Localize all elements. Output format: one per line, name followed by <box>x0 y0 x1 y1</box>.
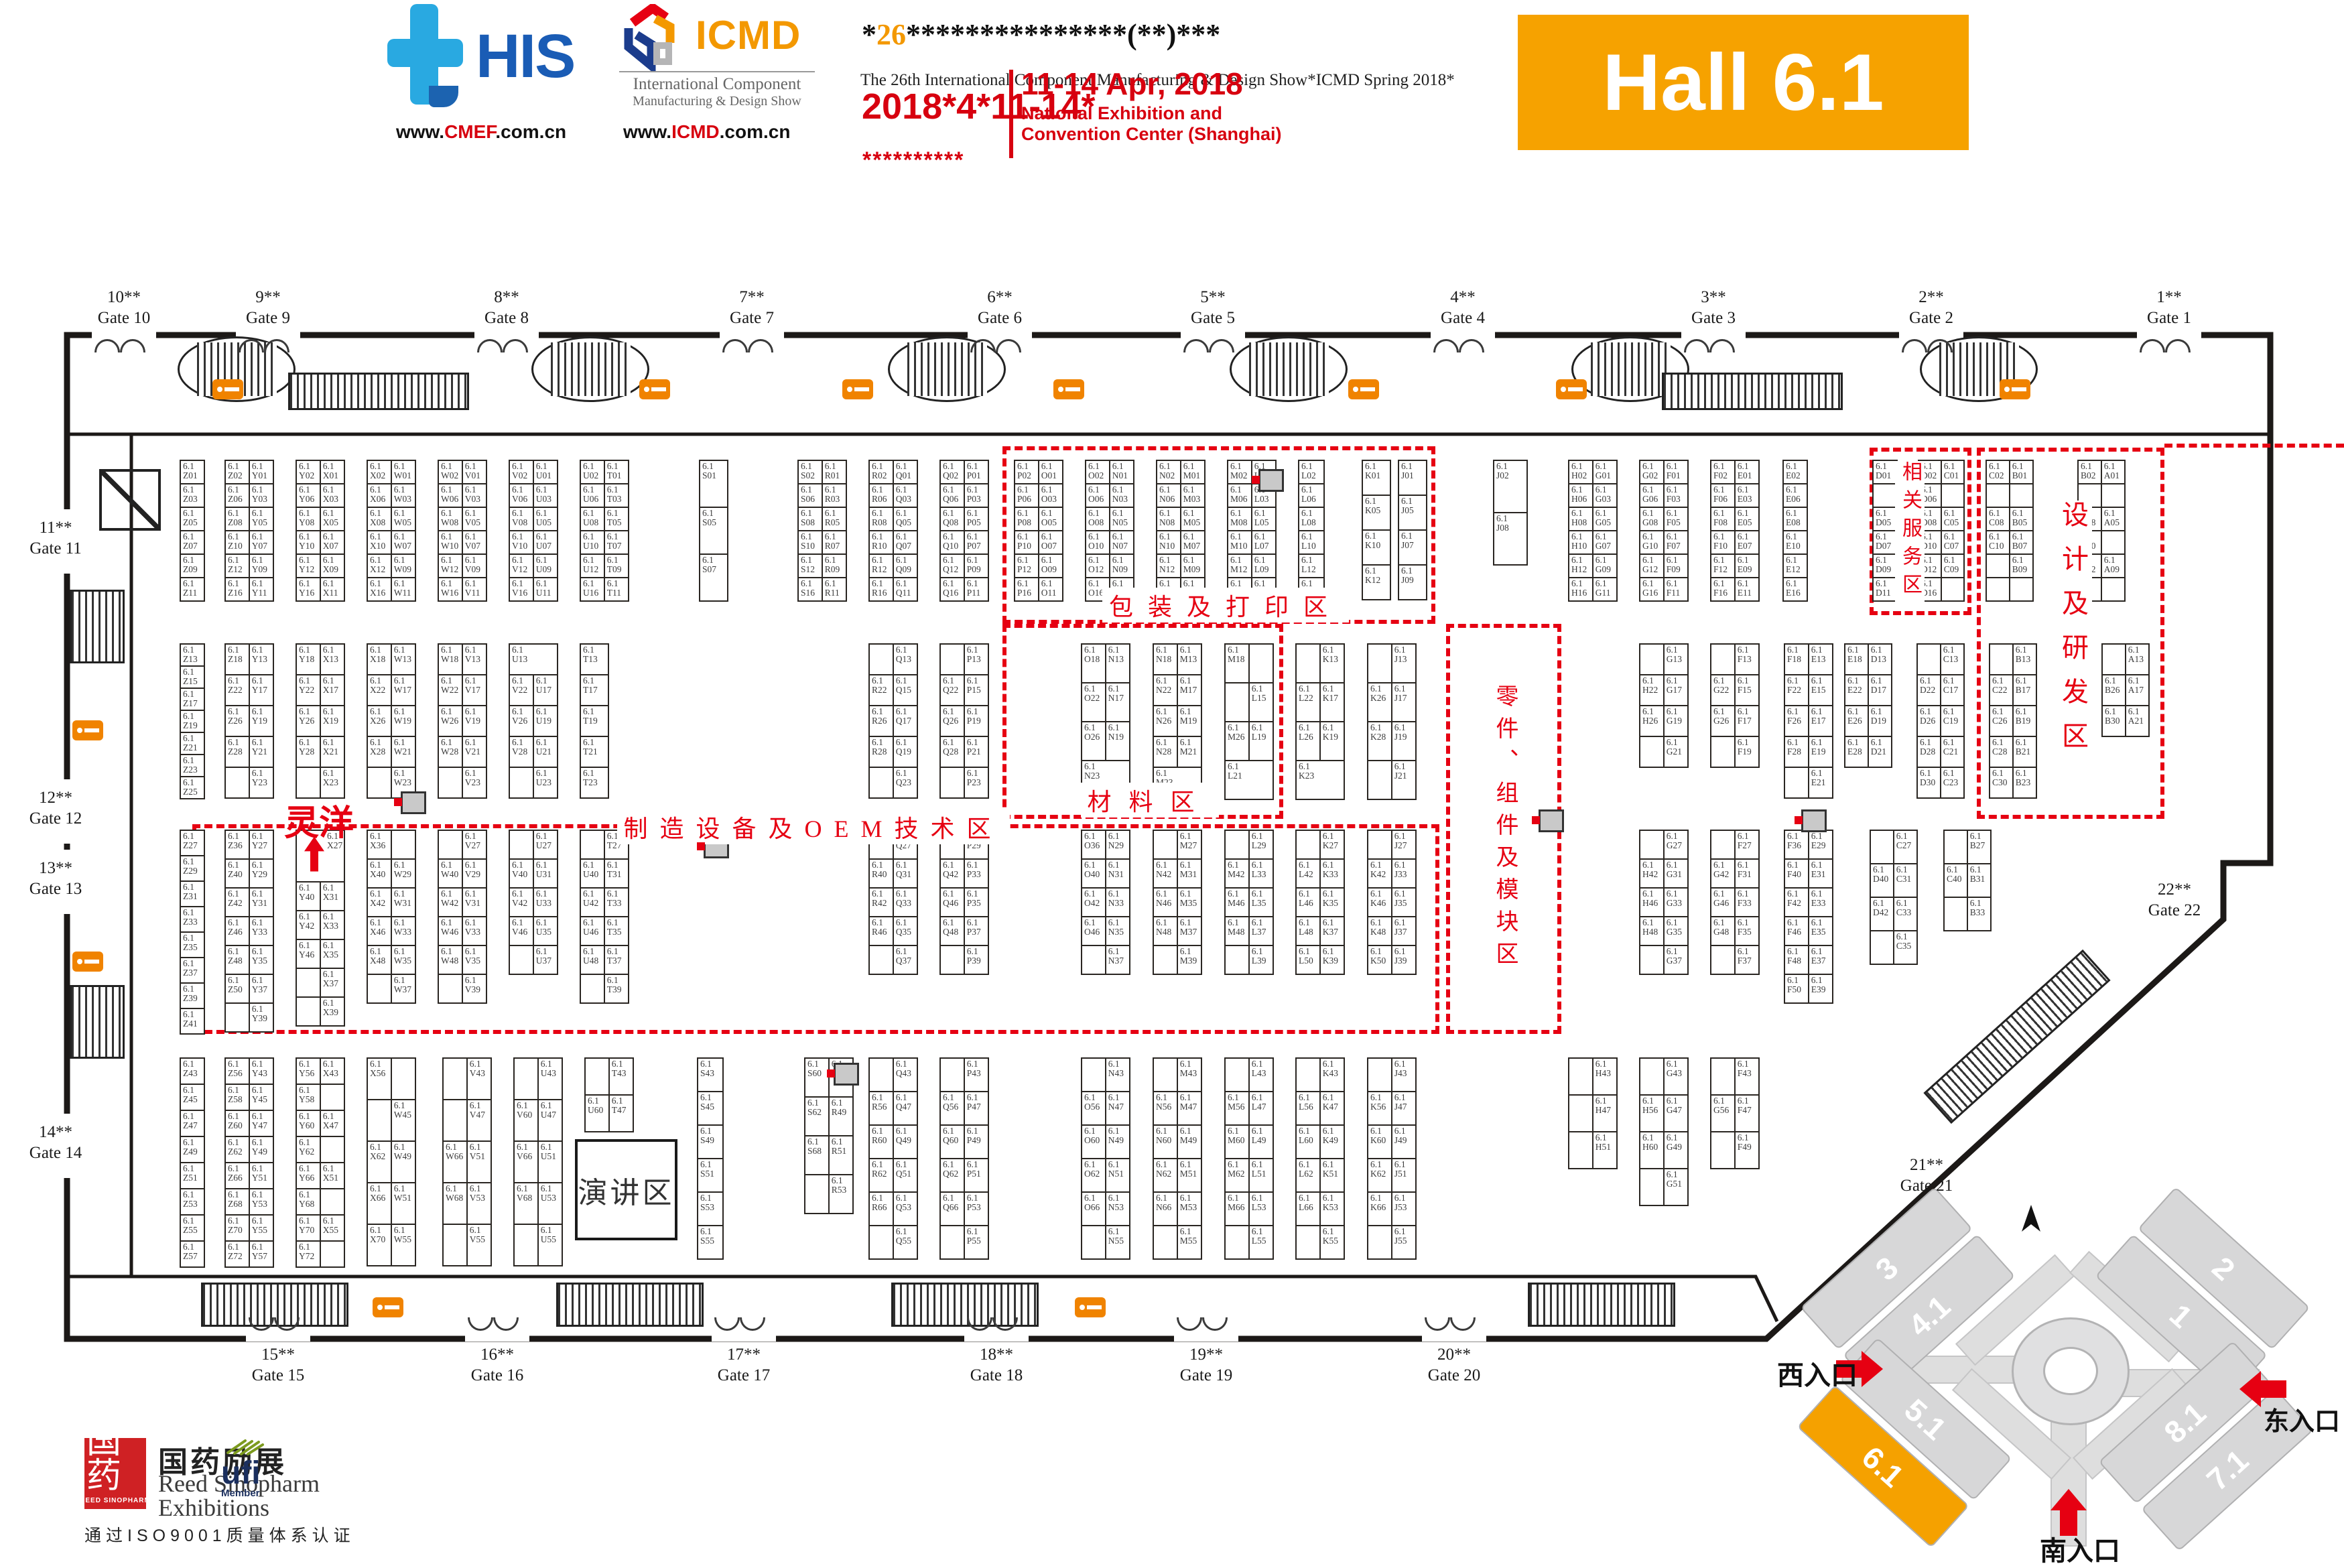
booth-Z35[interactable]: 6.1 Z35 <box>180 931 205 959</box>
booth-Y46[interactable]: 6.1 Y46 <box>296 939 321 970</box>
booth-V01[interactable]: 6.1 V01 <box>462 460 487 485</box>
booth-Z31[interactable]: 6.1 Z31 <box>180 880 205 908</box>
booth-U31[interactable]: 6.1 U31 <box>533 858 558 889</box>
booth-F12[interactable]: 6.1 F12 <box>1710 553 1736 579</box>
booth-Q06[interactable]: 6.1 Q06 <box>939 483 965 509</box>
booth-N35[interactable]: 6.1 N35 <box>1105 916 1130 947</box>
booth-L15[interactable]: 6.1 L15 <box>1248 682 1274 723</box>
booth-J08[interactable]: 6.1 J08 <box>1493 512 1528 566</box>
booth-N12[interactable]: 6.1 N12 <box>1156 553 1181 579</box>
booth-L50[interactable]: 6.1 L50 <box>1295 945 1321 976</box>
booth-X31[interactable]: 6.1 X31 <box>320 881 345 912</box>
booth-N46[interactable]: 6.1 N46 <box>1153 887 1178 918</box>
booth-Y49[interactable]: 6.1 Y49 <box>249 1136 274 1164</box>
booth-T23[interactable]: 6.1 T23 <box>580 767 609 799</box>
booth-R56[interactable]: 6.1 R56 <box>868 1091 894 1126</box>
booth-R06[interactable]: 6.1 R06 <box>868 483 894 509</box>
booth-H51[interactable]: 6.1 H51 <box>1592 1131 1618 1170</box>
booth-R66[interactable]: 6.1 R66 <box>868 1191 894 1227</box>
booth-E01[interactable]: 6.1 E01 <box>1734 460 1760 485</box>
booth-N08[interactable]: 6.1 N08 <box>1156 507 1181 532</box>
booth-T01[interactable]: 6.1 T01 <box>604 460 629 485</box>
booth-U60[interactable]: 6.1 U60 <box>584 1094 610 1133</box>
booth-R62[interactable]: 6.1 R62 <box>868 1158 894 1193</box>
booth-Q02[interactable]: 6.1 Q02 <box>939 460 965 485</box>
booth-Z02[interactable]: 6.1 Z02 <box>224 460 250 485</box>
booth-M51[interactable]: 6.1 M51 <box>1177 1158 1202 1193</box>
booth-X62[interactable]: 6.1 X62 <box>367 1140 392 1184</box>
booth-R02[interactable]: 6.1 R02 <box>868 460 894 485</box>
booth-L39[interactable]: 6.1 L39 <box>1248 945 1274 976</box>
booth-X51[interactable]: 6.1 X51 <box>320 1162 345 1190</box>
booth-P06[interactable]: 6.1 P06 <box>1014 483 1039 509</box>
booth-P51[interactable]: 6.1 P51 <box>964 1158 989 1193</box>
booth-U02[interactable]: 6.1 U02 <box>580 460 605 485</box>
booth-J07[interactable]: 6.1 J07 <box>1398 529 1427 566</box>
booth-R07[interactable]: 6.1 R07 <box>822 530 847 556</box>
booth-P19[interactable]: 6.1 P19 <box>964 705 989 738</box>
booth-X22[interactable]: 6.1 X22 <box>367 674 392 707</box>
booth-U47[interactable]: 6.1 U47 <box>537 1099 563 1142</box>
booth-U17[interactable]: 6.1 U17 <box>533 674 558 707</box>
booth-X28[interactable]: 6.1 X28 <box>367 736 392 769</box>
booth-Q66[interactable]: 6.1 Q66 <box>939 1191 965 1227</box>
booth-K49[interactable]: 6.1 K49 <box>1319 1124 1345 1160</box>
booth-M46[interactable]: 6.1 M46 <box>1224 887 1250 918</box>
booth-Q42[interactable]: 6.1 Q42 <box>939 858 965 889</box>
booth-Y05[interactable]: 6.1 Y05 <box>249 507 274 532</box>
booth-C17[interactable]: 6.1 C17 <box>1940 674 1965 707</box>
booth-W45[interactable]: 6.1 W45 <box>391 1099 416 1142</box>
booth-H42[interactable]: 6.1 H42 <box>1639 858 1665 889</box>
booth-T37[interactable]: 6.1 T37 <box>604 945 629 976</box>
booth-M03[interactable]: 6.1 M03 <box>1180 483 1206 509</box>
booth-E08[interactable]: 6.1 E08 <box>1782 507 1808 532</box>
booth-U23[interactable]: 6.1 U23 <box>533 767 558 799</box>
booth-F33[interactable]: 6.1 F33 <box>1734 887 1760 918</box>
booth-F13[interactable]: 6.1 F13 <box>1734 643 1760 676</box>
booth-L56[interactable]: 6.1 L56 <box>1295 1091 1321 1126</box>
booth-Q35[interactable]: 6.1 Q35 <box>893 916 918 947</box>
booth-B33[interactable]: 6.1 B33 <box>1967 897 1992 932</box>
booth-Z26[interactable]: 6.1 Z26 <box>224 705 250 738</box>
booth-K28[interactable]: 6.1 K28 <box>1367 721 1392 762</box>
booth-M01[interactable]: 6.1 M01 <box>1180 460 1206 485</box>
booth-W18[interactable]: 6.1 W18 <box>438 643 463 676</box>
booth-Y56[interactable]: 6.1 Y56 <box>296 1057 321 1086</box>
booth-Q47[interactable]: 6.1 Q47 <box>893 1091 918 1126</box>
booth-L12[interactable]: 6.1 L12 <box>1298 553 1325 579</box>
booth-N43[interactable]: 6.1 N43 <box>1105 1057 1130 1093</box>
booth-Z01[interactable]: 6.1 Z01 <box>180 460 205 485</box>
booth-N60[interactable]: 6.1 N60 <box>1153 1124 1178 1160</box>
booth-R08[interactable]: 6.1 R08 <box>868 507 894 532</box>
booth-U06[interactable]: 6.1 U06 <box>580 483 605 509</box>
booth-N17[interactable]: 6.1 N17 <box>1105 682 1130 723</box>
booth-S16[interactable]: 6.1 S16 <box>797 577 823 602</box>
booth-Q08[interactable]: 6.1 Q08 <box>939 507 965 532</box>
booth-V55[interactable]: 6.1 V55 <box>466 1224 492 1267</box>
booth-E35[interactable]: 6.1 E35 <box>1808 916 1833 947</box>
booth-Y29[interactable]: 6.1 Y29 <box>249 858 274 889</box>
booth-Y60[interactable]: 6.1 Y60 <box>296 1110 321 1138</box>
booth-K53[interactable]: 6.1 K53 <box>1319 1191 1345 1227</box>
booth-C28[interactable]: 6.1 C28 <box>1989 736 2014 769</box>
booth-V13[interactable]: 6.1 V13 <box>462 643 487 676</box>
booth-L53[interactable]: 6.1 L53 <box>1248 1191 1274 1227</box>
booth-B02[interactable]: 6.1 B02 <box>2077 460 2102 485</box>
booth-C08[interactable]: 6.1 C08 <box>1985 507 2010 532</box>
booth-K46[interactable]: 6.1 K46 <box>1367 887 1392 918</box>
booth-G35[interactable]: 6.1 G35 <box>1663 916 1689 947</box>
booth-T19[interactable]: 6.1 T19 <box>580 705 609 738</box>
booth-H16[interactable]: 6.1 H16 <box>1568 577 1593 602</box>
booth-S62[interactable]: 6.1 S62 <box>804 1096 830 1137</box>
booth-C19[interactable]: 6.1 C19 <box>1940 705 1965 738</box>
booth-R01[interactable]: 6.1 R01 <box>822 460 847 485</box>
booth-N09[interactable]: 6.1 N09 <box>1109 553 1134 579</box>
booth-D07[interactable]: 6.1 D07 <box>1872 530 1898 556</box>
booth-O03[interactable]: 6.1 O03 <box>1038 483 1063 509</box>
booth-G07[interactable]: 6.1 G07 <box>1592 530 1618 556</box>
booth-W01[interactable]: 6.1 W01 <box>391 460 416 485</box>
booth-G06[interactable]: 6.1 G06 <box>1639 483 1665 509</box>
booth-L29[interactable]: 6.1 L29 <box>1248 830 1274 860</box>
booth-V11[interactable]: 6.1 V11 <box>462 577 487 602</box>
booth-Z10[interactable]: 6.1 Z10 <box>224 530 250 556</box>
booth-V28[interactable]: 6.1 V28 <box>509 736 534 769</box>
booth-G48[interactable]: 6.1 G48 <box>1710 916 1736 947</box>
booth-K10[interactable]: 6.1 K10 <box>1362 529 1391 566</box>
booth-Z58[interactable]: 6.1 Z58 <box>224 1084 250 1112</box>
booth-V06[interactable]: 6.1 V06 <box>509 483 534 509</box>
booth-N51[interactable]: 6.1 N51 <box>1105 1158 1130 1193</box>
booth-W37[interactable]: 6.1 W37 <box>391 974 416 1004</box>
booth-W51[interactable]: 6.1 W51 <box>391 1182 416 1226</box>
booth-R28[interactable]: 6.1 R28 <box>868 736 894 769</box>
booth-B07[interactable]: 6.1 B07 <box>2009 530 2034 556</box>
booth-K27[interactable]: 6.1 K27 <box>1319 830 1345 860</box>
booth-B17[interactable]: 6.1 B17 <box>2012 674 2037 707</box>
booth-C30[interactable]: 6.1 C30 <box>1989 767 2014 799</box>
booth-L02[interactable]: 6.1 L02 <box>1298 460 1325 485</box>
booth-O46[interactable]: 6.1 O46 <box>1081 916 1106 947</box>
booth-W48[interactable]: 6.1 W48 <box>438 945 463 976</box>
booth-F07[interactable]: 6.1 F07 <box>1663 530 1689 556</box>
booth-G46[interactable]: 6.1 G46 <box>1710 887 1736 918</box>
booth-F19[interactable]: 6.1 F19 <box>1734 736 1760 769</box>
booth-D26[interactable]: 6.1 D26 <box>1916 705 1941 738</box>
booth-Z46[interactable]: 6.1 Z46 <box>224 916 250 947</box>
booth-F11[interactable]: 6.1 F11 <box>1663 577 1689 602</box>
booth-A17[interactable]: 6.1 A17 <box>2125 674 2150 707</box>
booth-J13[interactable]: 6.1 J13 <box>1391 643 1417 684</box>
booth-J33[interactable]: 6.1 J33 <box>1391 858 1417 889</box>
booth-T11[interactable]: 6.1 T11 <box>604 577 629 602</box>
booth-Q60[interactable]: 6.1 Q60 <box>939 1124 965 1160</box>
booth-U55[interactable]: 6.1 U55 <box>537 1224 563 1267</box>
booth-M49[interactable]: 6.1 M49 <box>1177 1124 1202 1160</box>
booth-B31[interactable]: 6.1 B31 <box>1967 863 1992 899</box>
booth-W21[interactable]: 6.1 W21 <box>391 736 416 769</box>
booth-E33[interactable]: 6.1 E33 <box>1808 887 1833 918</box>
booth-Z72[interactable]: 6.1 Z72 <box>224 1240 250 1268</box>
booth-Q17[interactable]: 6.1 Q17 <box>893 705 918 738</box>
booth-X47[interactable]: 6.1 X47 <box>320 1110 345 1138</box>
booth-K62[interactable]: 6.1 K62 <box>1367 1158 1392 1193</box>
booth-L22[interactable]: 6.1 L22 <box>1295 682 1321 723</box>
booth-F03[interactable]: 6.1 F03 <box>1663 483 1689 509</box>
booth-Y19[interactable]: 6.1 Y19 <box>249 705 274 738</box>
booth-C13[interactable]: 6.1 C13 <box>1940 643 1965 676</box>
booth-M21[interactable]: 6.1 M21 <box>1177 736 1202 769</box>
booth-Z56[interactable]: 6.1 Z56 <box>224 1057 250 1086</box>
booth-P37[interactable]: 6.1 P37 <box>964 916 989 947</box>
booth-Z47[interactable]: 6.1 Z47 <box>180 1110 205 1138</box>
booth-N37[interactable]: 6.1 N37 <box>1105 945 1130 976</box>
booth-W03[interactable]: 6.1 W03 <box>391 483 416 509</box>
booth-P13[interactable]: 6.1 P13 <box>964 643 989 676</box>
booth-C31[interactable]: 6.1 C31 <box>1893 863 1918 899</box>
booth-L33[interactable]: 6.1 L33 <box>1248 858 1274 889</box>
booth-X43[interactable]: 6.1 X43 <box>320 1057 345 1086</box>
booth-F22[interactable]: 6.1 F22 <box>1784 674 1809 707</box>
booth-L43[interactable]: 6.1 L43 <box>1248 1057 1274 1093</box>
booth-U35[interactable]: 6.1 U35 <box>533 916 558 947</box>
booth-P12[interactable]: 6.1 P12 <box>1014 553 1039 579</box>
booth-X05[interactable]: 6.1 X05 <box>320 507 345 532</box>
booth-V09[interactable]: 6.1 V09 <box>462 553 487 579</box>
booth-Q53[interactable]: 6.1 Q53 <box>893 1191 918 1227</box>
booth-Z50[interactable]: 6.1 Z50 <box>224 974 250 1004</box>
booth-P11[interactable]: 6.1 P11 <box>964 577 989 602</box>
booth-Z51[interactable]: 6.1 Z51 <box>180 1162 205 1190</box>
booth-Q03[interactable]: 6.1 Q03 <box>893 483 918 509</box>
booth-V17[interactable]: 6.1 V17 <box>462 674 487 707</box>
booth-Z25[interactable]: 6.1 Z25 <box>180 776 205 800</box>
booth-T05[interactable]: 6.1 T05 <box>604 507 629 532</box>
booth-Z45[interactable]: 6.1 Z45 <box>180 1084 205 1112</box>
booth-Z18[interactable]: 6.1 Z18 <box>224 643 250 676</box>
booth-O11[interactable]: 6.1 O11 <box>1038 577 1063 602</box>
booth-W55[interactable]: 6.1 W55 <box>391 1224 416 1267</box>
booth-Y23[interactable]: 6.1 Y23 <box>249 767 274 799</box>
booth-P16[interactable]: 6.1 P16 <box>1014 577 1039 602</box>
booth-R09[interactable]: 6.1 R09 <box>822 553 847 579</box>
booth-F06[interactable]: 6.1 F06 <box>1710 483 1736 509</box>
booth-L08[interactable]: 6.1 L08 <box>1298 507 1325 532</box>
booth-O05[interactable]: 6.1 O05 <box>1038 507 1063 532</box>
booth-G16[interactable]: 6.1 G16 <box>1639 577 1665 602</box>
booth-Y31[interactable]: 6.1 Y31 <box>249 887 274 918</box>
booth-T35[interactable]: 6.1 T35 <box>604 916 629 947</box>
booth-L37[interactable]: 6.1 L37 <box>1248 916 1274 947</box>
booth-J43[interactable]: 6.1 J43 <box>1391 1057 1417 1093</box>
booth-X42[interactable]: 6.1 X42 <box>367 887 392 918</box>
booth-G27[interactable]: 6.1 G27 <box>1663 830 1689 860</box>
booth-Z06[interactable]: 6.1 Z06 <box>224 483 250 509</box>
booth-U33[interactable]: 6.1 U33 <box>533 887 558 918</box>
booth-V68[interactable]: 6.1 V68 <box>513 1182 539 1226</box>
booth-W42[interactable]: 6.1 W42 <box>438 887 463 918</box>
booth-M27[interactable]: 6.1 M27 <box>1177 830 1202 860</box>
booth-Y57[interactable]: 6.1 Y57 <box>249 1240 274 1268</box>
booth-K26[interactable]: 6.1 K26 <box>1367 682 1392 723</box>
booth-X03[interactable]: 6.1 X03 <box>320 483 345 509</box>
booth-M60[interactable]: 6.1 M60 <box>1224 1124 1250 1160</box>
booth-M18[interactable]: 6.1 M18 <box>1224 643 1250 684</box>
booth-X11[interactable]: 6.1 X11 <box>320 577 345 602</box>
booth-G02[interactable]: 6.1 G02 <box>1639 460 1665 485</box>
booth-G01[interactable]: 6.1 G01 <box>1592 460 1618 485</box>
booth-A21[interactable]: 6.1 A21 <box>2125 705 2150 738</box>
booth-T39[interactable]: 6.1 T39 <box>604 974 629 1004</box>
booth-Q62[interactable]: 6.1 Q62 <box>939 1158 965 1193</box>
booth-O06[interactable]: 6.1 O06 <box>1085 483 1110 509</box>
booth-V05[interactable]: 6.1 V05 <box>462 507 487 532</box>
booth-G08[interactable]: 6.1 G08 <box>1639 507 1665 532</box>
booth-D28[interactable]: 6.1 D28 <box>1916 736 1941 769</box>
booth-E28[interactable]: 6.1 E28 <box>1844 736 1869 769</box>
booth-Z62[interactable]: 6.1 Z62 <box>224 1136 250 1164</box>
booth-R42[interactable]: 6.1 R42 <box>868 887 894 918</box>
booth-F46[interactable]: 6.1 F46 <box>1784 916 1809 947</box>
booth-F48[interactable]: 6.1 F48 <box>1784 945 1809 976</box>
booth-O42[interactable]: 6.1 O42 <box>1081 887 1106 918</box>
booth-V12[interactable]: 6.1 V12 <box>509 553 534 579</box>
booth-H22[interactable]: 6.1 H22 <box>1639 674 1665 707</box>
booth-O60[interactable]: 6.1 O60 <box>1081 1124 1106 1160</box>
booth-E15[interactable]: 6.1 E15 <box>1808 674 1833 707</box>
gate-opening[interactable] <box>1174 1332 1238 1342</box>
booth-N56[interactable]: 6.1 N56 <box>1153 1091 1178 1126</box>
booth-N13[interactable]: 6.1 N13 <box>1105 643 1130 684</box>
booth-Z60[interactable]: 6.1 Z60 <box>224 1110 250 1138</box>
booth-R11[interactable]: 6.1 R11 <box>822 577 847 602</box>
booth-K23[interactable]: 6.1 K23 <box>1295 760 1345 801</box>
booth-F08[interactable]: 6.1 F08 <box>1710 507 1736 532</box>
booth-Y43[interactable]: 6.1 Y43 <box>249 1057 274 1086</box>
booth-V35[interactable]: 6.1 V35 <box>462 945 487 976</box>
booth-N06[interactable]: 6.1 N06 <box>1156 483 1181 509</box>
gate-opening[interactable] <box>1422 1332 1486 1342</box>
booth-T07[interactable]: 6.1 T07 <box>604 530 629 556</box>
booth-V43[interactable]: 6.1 V43 <box>466 1057 492 1101</box>
booth-V29[interactable]: 6.1 V29 <box>462 858 487 889</box>
booth-Z17[interactable]: 6.1 Z17 <box>180 688 205 712</box>
booth-X19[interactable]: 6.1 X19 <box>320 705 345 738</box>
booth-J55[interactable]: 6.1 J55 <box>1391 1225 1417 1260</box>
booth-P03[interactable]: 6.1 P03 <box>964 483 989 509</box>
booth-E16[interactable]: 6.1 E16 <box>1782 577 1808 602</box>
booth-V66[interactable]: 6.1 V66 <box>513 1140 539 1184</box>
booth-N10[interactable]: 6.1 N10 <box>1156 530 1181 556</box>
booth-G05[interactable]: 6.1 G05 <box>1592 507 1618 532</box>
booth-X48[interactable]: 6.1 X48 <box>367 945 392 976</box>
booth-B26[interactable]: 6.1 B26 <box>2101 674 2126 707</box>
booth-P47[interactable]: 6.1 P47 <box>964 1091 989 1126</box>
booth-T43[interactable]: 6.1 T43 <box>608 1057 634 1096</box>
booth-Z48[interactable]: 6.1 Z48 <box>224 945 250 976</box>
booth-D21[interactable]: 6.1 D21 <box>1868 736 1892 769</box>
booth-Q11[interactable]: 6.1 Q11 <box>893 577 918 602</box>
booth-T33[interactable]: 6.1 T33 <box>604 887 629 918</box>
booth-X07[interactable]: 6.1 X07 <box>320 530 345 556</box>
booth-C05[interactable]: 6.1 C05 <box>1941 507 1965 532</box>
booth-O02[interactable]: 6.1 O02 <box>1085 460 1110 485</box>
booth-R53[interactable]: 6.1 R53 <box>828 1174 854 1215</box>
booth-H06[interactable]: 6.1 H06 <box>1568 483 1593 509</box>
booth-G19[interactable]: 6.1 G19 <box>1663 705 1689 738</box>
booth-Y27[interactable]: 6.1 Y27 <box>249 830 274 860</box>
booth-W22[interactable]: 6.1 W22 <box>438 674 463 707</box>
booth-J19[interactable]: 6.1 J19 <box>1391 721 1417 762</box>
booth-C26[interactable]: 6.1 C26 <box>1989 705 2014 738</box>
booth-F17[interactable]: 6.1 F17 <box>1734 705 1760 738</box>
booth-Q49[interactable]: 6.1 Q49 <box>893 1124 918 1160</box>
booth-W26[interactable]: 6.1 W26 <box>438 705 463 738</box>
booth-P49[interactable]: 6.1 P49 <box>964 1124 989 1160</box>
booth-K55[interactable]: 6.1 K55 <box>1319 1225 1345 1260</box>
booth-P08[interactable]: 6.1 P08 <box>1014 507 1039 532</box>
booth-Y06[interactable]: 6.1 Y06 <box>296 483 321 509</box>
booth-F42[interactable]: 6.1 F42 <box>1784 887 1809 918</box>
booth-Q37[interactable]: 6.1 Q37 <box>893 945 918 976</box>
booth-Y09[interactable]: 6.1 Y09 <box>249 553 274 579</box>
booth-O36[interactable]: 6.1 O36 <box>1081 830 1106 860</box>
booth-Q26[interactable]: 6.1 Q26 <box>939 705 965 738</box>
booth-O18[interactable]: 6.1 O18 <box>1081 643 1106 684</box>
booth-A09[interactable]: 6.1 A09 <box>2101 553 2126 579</box>
booth-R26[interactable]: 6.1 R26 <box>868 705 894 738</box>
booth-U27[interactable]: 6.1 U27 <box>533 830 558 860</box>
booth-M02[interactable]: 6.1 M02 <box>1227 460 1252 485</box>
booth-G17[interactable]: 6.1 G17 <box>1663 674 1689 707</box>
booth-H43[interactable]: 6.1 H43 <box>1592 1057 1618 1096</box>
gate-opening[interactable] <box>465 1332 529 1342</box>
booth-V16[interactable]: 6.1 V16 <box>509 577 534 602</box>
booth-E10[interactable]: 6.1 E10 <box>1782 530 1808 556</box>
booth-O08[interactable]: 6.1 O08 <box>1085 507 1110 532</box>
booth-M42[interactable]: 6.1 M42 <box>1224 858 1250 889</box>
booth-Q07[interactable]: 6.1 Q07 <box>893 530 918 556</box>
booth-W46[interactable]: 6.1 W46 <box>438 916 463 947</box>
booth-Q13[interactable]: 6.1 Q13 <box>893 643 918 676</box>
booth-J49[interactable]: 6.1 J49 <box>1391 1124 1417 1160</box>
booth-T21[interactable]: 6.1 T21 <box>580 736 609 769</box>
booth-U51[interactable]: 6.1 U51 <box>537 1140 563 1184</box>
booth-X46[interactable]: 6.1 X46 <box>367 916 392 947</box>
booth-J39[interactable]: 6.1 J39 <box>1391 945 1417 976</box>
booth-E29[interactable]: 6.1 E29 <box>1808 830 1833 860</box>
booth-M26[interactable]: 6.1 M26 <box>1224 721 1250 762</box>
booth-Z70[interactable]: 6.1 Z70 <box>224 1214 250 1242</box>
booth-V26[interactable]: 6.1 V26 <box>509 705 534 738</box>
booth-V07[interactable]: 6.1 V07 <box>462 530 487 556</box>
booth-K51[interactable]: 6.1 K51 <box>1319 1158 1345 1193</box>
booth-X01[interactable]: 6.1 X01 <box>320 460 345 485</box>
booth-Z13[interactable]: 6.1 Z13 <box>180 643 205 667</box>
booth-N02[interactable]: 6.1 N02 <box>1156 460 1181 485</box>
booth-Y03[interactable]: 6.1 Y03 <box>249 483 274 509</box>
booth-G12[interactable]: 6.1 G12 <box>1639 553 1665 579</box>
booth-J09[interactable]: 6.1 J09 <box>1398 564 1427 601</box>
booth-O12[interactable]: 6.1 O12 <box>1085 553 1110 579</box>
booth-Z23[interactable]: 6.1 Z23 <box>180 754 205 778</box>
booth-N07[interactable]: 6.1 N07 <box>1109 530 1134 556</box>
booth-W31[interactable]: 6.1 W31 <box>391 887 416 918</box>
booth-Y58[interactable]: 6.1 Y58 <box>296 1084 321 1112</box>
